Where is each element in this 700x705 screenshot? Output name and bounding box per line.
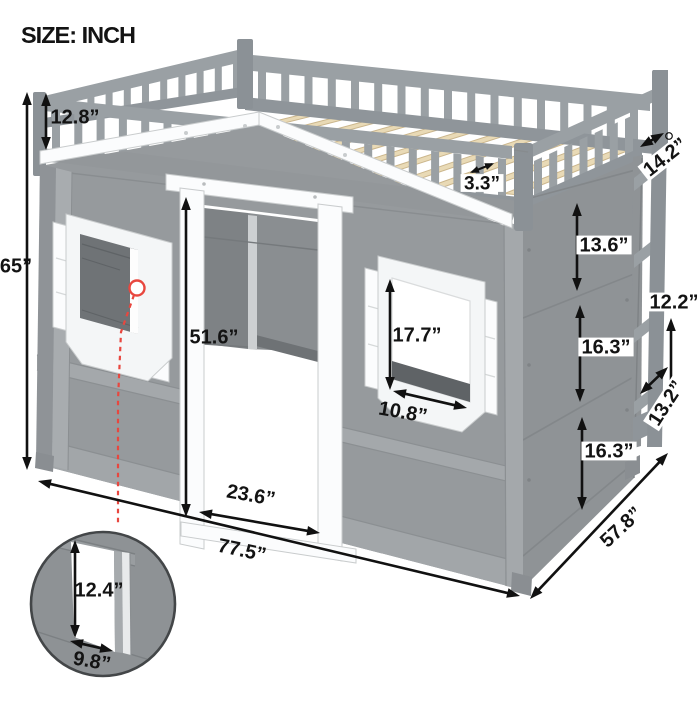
- svg-text:12.2”: 12.2”: [650, 292, 699, 314]
- svg-text:12.8”: 12.8”: [51, 107, 100, 129]
- svg-text:13.6”: 13.6”: [580, 235, 629, 257]
- svg-text:SIZE: INCH: SIZE: INCH: [21, 22, 135, 48]
- svg-text:12.4”: 12.4”: [75, 580, 124, 602]
- svg-text:65”: 65”: [0, 256, 32, 278]
- svg-text:51.6”: 51.6”: [190, 327, 239, 349]
- svg-text:16.3”: 16.3”: [585, 441, 634, 463]
- svg-text:17.7”: 17.7”: [393, 325, 442, 347]
- svg-text:3.3”: 3.3”: [464, 173, 500, 194]
- svg-text:16.3”: 16.3”: [582, 337, 631, 359]
